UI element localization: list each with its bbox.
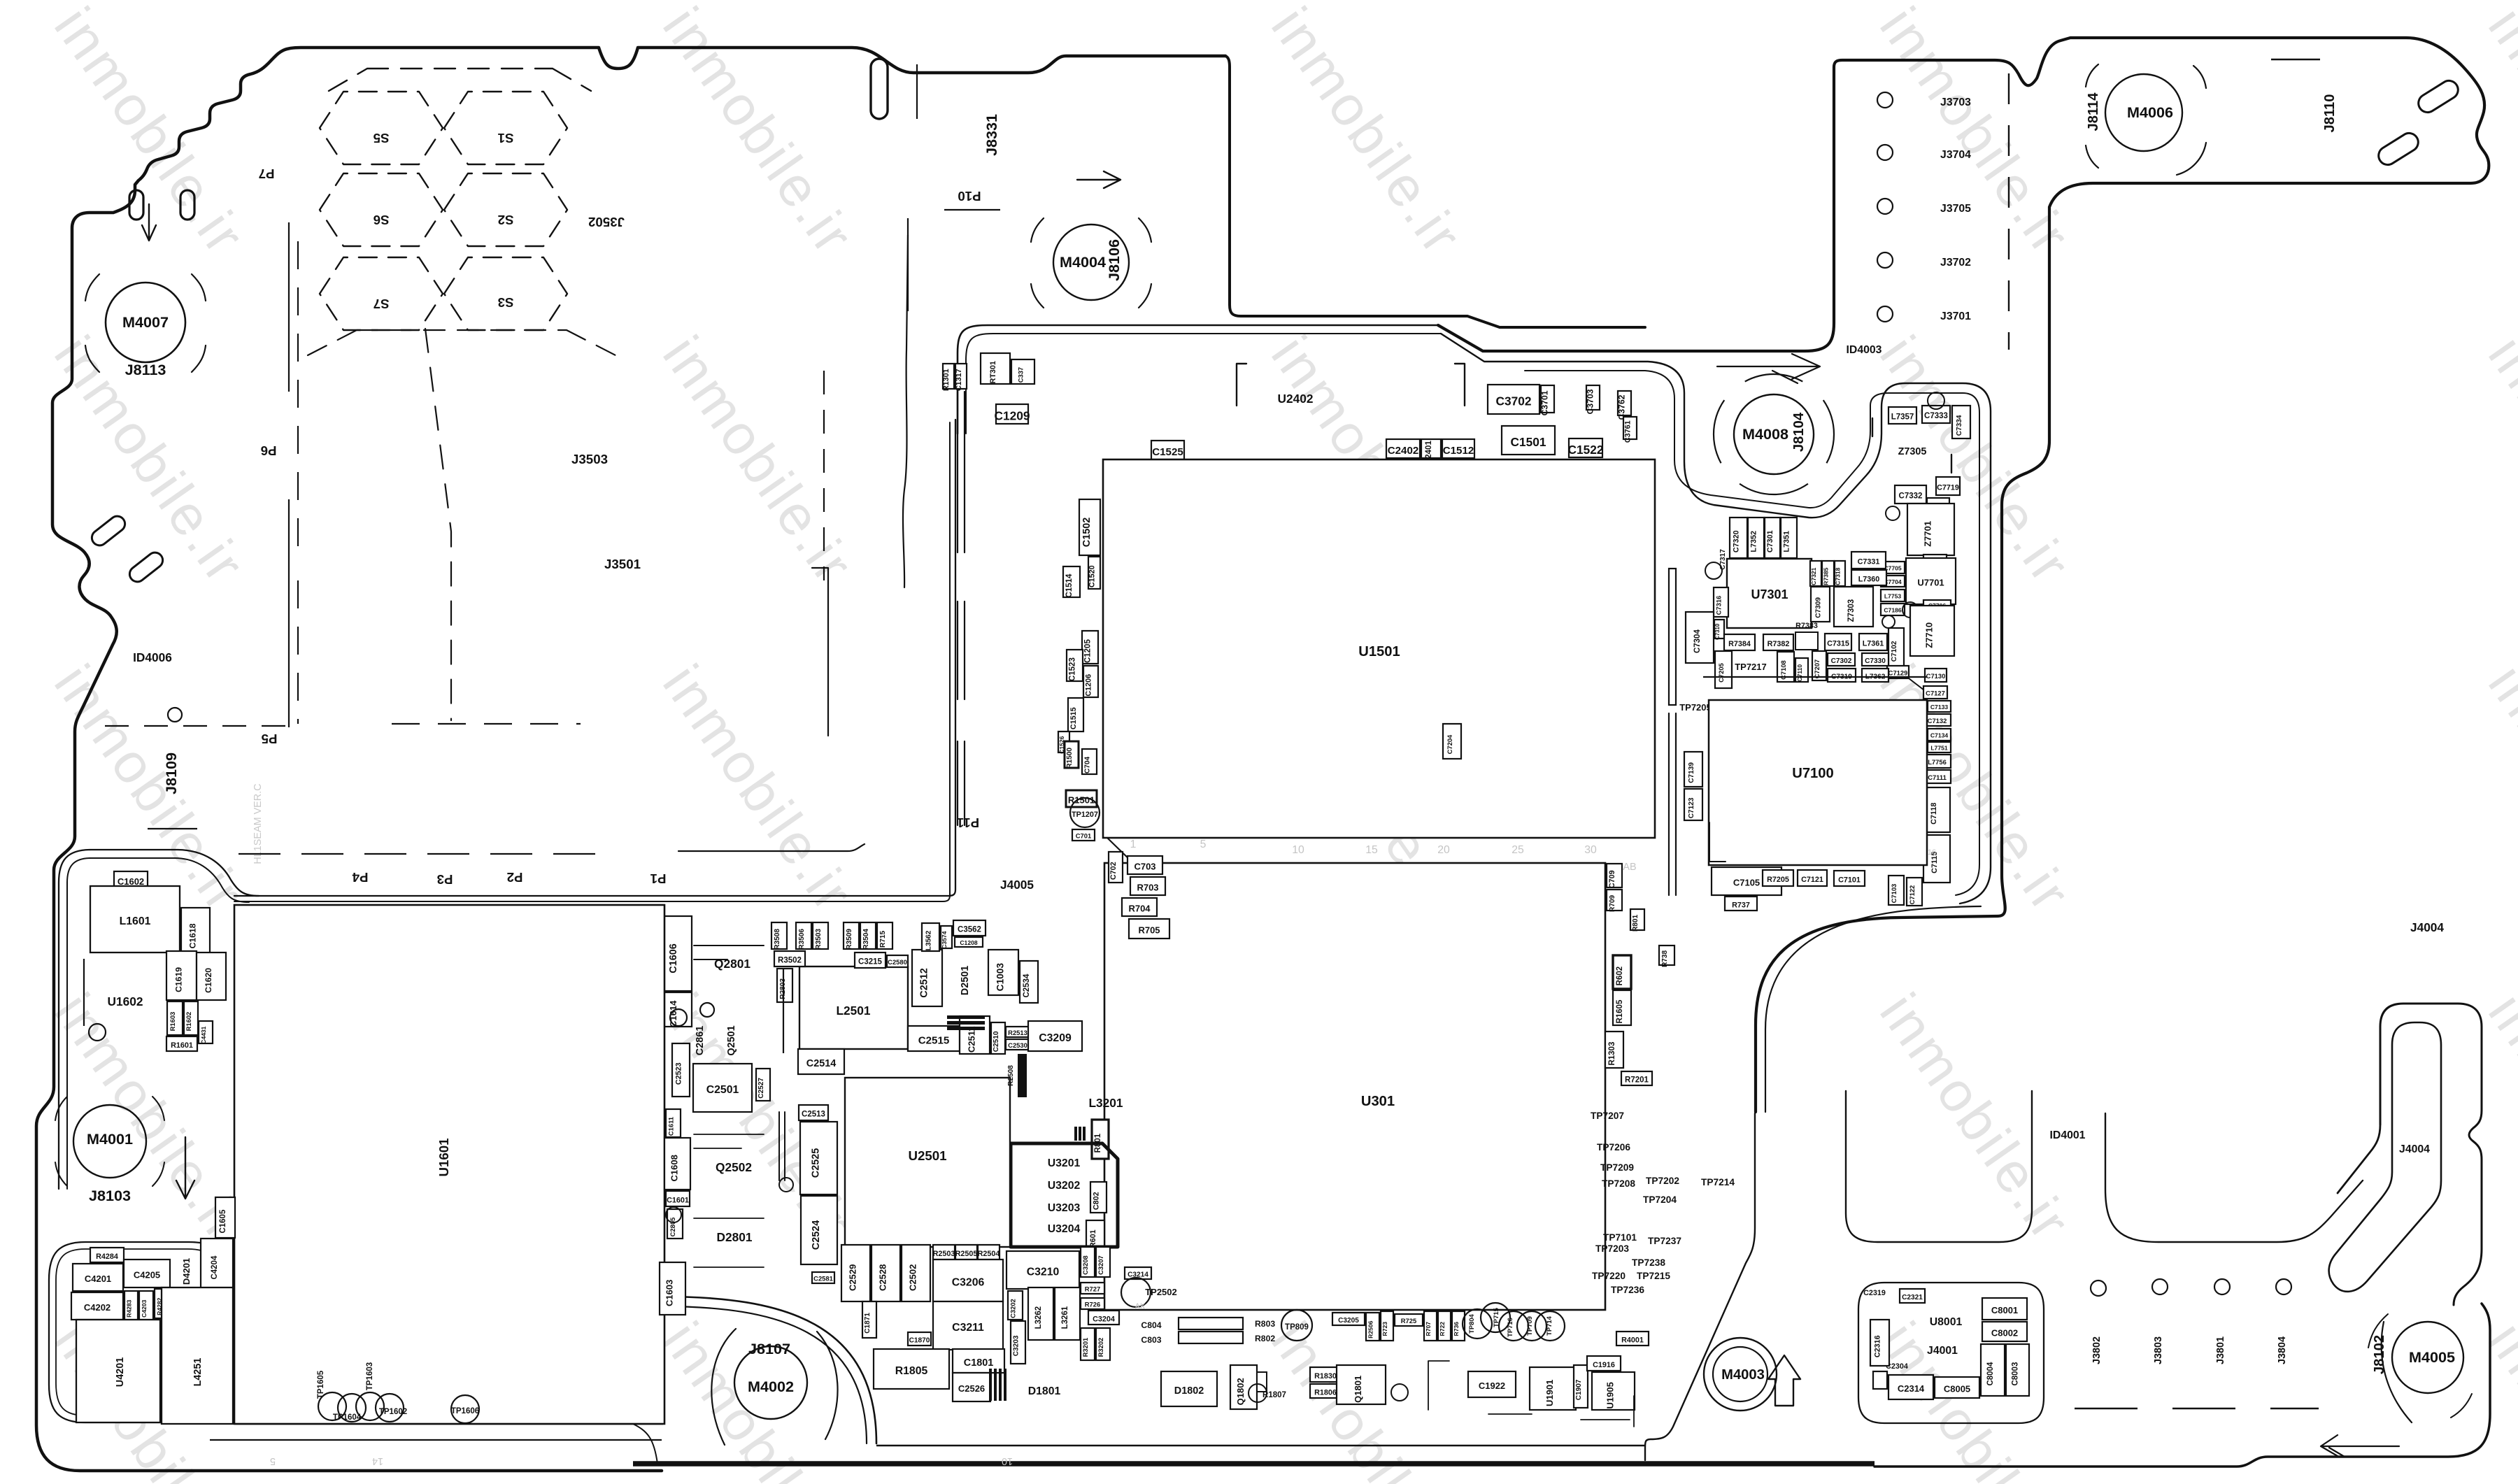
svg-text:C1208: C1208 — [960, 939, 978, 946]
svg-text:TP714: TP714 — [1545, 1315, 1553, 1335]
svg-text:C3205: C3205 — [1338, 1317, 1359, 1325]
svg-text:TP7220: TP7220 — [1592, 1271, 1626, 1281]
svg-text:J4004: J4004 — [2410, 920, 2444, 934]
svg-text:L7361: L7361 — [1863, 639, 1884, 648]
svg-text:C7332: C7332 — [1899, 492, 1923, 501]
svg-text:C1618: C1618 — [188, 923, 198, 948]
svg-text:R2506: R2506 — [1367, 1320, 1374, 1339]
svg-text:C7129: C7129 — [1888, 669, 1908, 677]
svg-text:R3502: R3502 — [778, 957, 802, 965]
svg-text:L7753: L7753 — [1884, 593, 1902, 600]
svg-text:TP7206: TP7206 — [1597, 1142, 1630, 1153]
svg-text:R722: R722 — [1439, 1322, 1446, 1336]
svg-text:14: 14 — [372, 1455, 383, 1467]
svg-text:L3262: L3262 — [1034, 1306, 1043, 1329]
svg-text:U301: U301 — [1361, 1094, 1395, 1109]
svg-text:L4251: L4251 — [192, 1358, 204, 1387]
svg-text:TP804: TP804 — [1467, 1313, 1475, 1333]
svg-text:C803: C803 — [1141, 1335, 1161, 1345]
svg-text:J8103: J8103 — [89, 1187, 131, 1204]
svg-text:TP7207: TP7207 — [1591, 1111, 1624, 1121]
svg-text:R7384: R7384 — [1728, 640, 1751, 648]
svg-text:U3203: U3203 — [1048, 1202, 1081, 1214]
svg-text:R1303: R1303 — [1608, 1042, 1616, 1066]
svg-text:J3702: J3702 — [1940, 257, 1971, 269]
svg-text:C8002: C8002 — [1991, 1327, 2018, 1338]
svg-text:TP7202: TP7202 — [1646, 1176, 1679, 1186]
svg-text:C8005: C8005 — [1944, 1383, 1970, 1394]
svg-text:R3202: R3202 — [1097, 1338, 1104, 1357]
svg-text:C1603: C1603 — [664, 1280, 675, 1306]
svg-text:R2508: R2508 — [1007, 1065, 1015, 1086]
svg-text:C1317: C1317 — [955, 369, 963, 391]
svg-text:P3: P3 — [437, 872, 453, 887]
svg-text:P11: P11 — [957, 815, 979, 830]
svg-text:M4002: M4002 — [748, 1378, 794, 1395]
svg-text:C7719: C7719 — [1937, 483, 1959, 492]
svg-text:R4283: R4283 — [126, 1299, 133, 1318]
svg-text:TP7101: TP7101 — [1603, 1232, 1637, 1243]
svg-text:C4201: C4201 — [85, 1273, 111, 1284]
svg-text:C1871: C1871 — [864, 1313, 872, 1334]
svg-text:U2402: U2402 — [1278, 392, 1314, 406]
svg-text:U3204: U3204 — [1048, 1223, 1081, 1235]
svg-text:TP1602: TP1602 — [379, 1408, 407, 1416]
svg-text:R715: R715 — [879, 930, 887, 948]
svg-text:30: 30 — [1584, 844, 1597, 856]
svg-text:P6: P6 — [261, 443, 277, 458]
svg-text:TP1604: TP1604 — [333, 1413, 362, 1422]
svg-text:M4007: M4007 — [122, 313, 169, 331]
svg-text:C802: C802 — [1093, 1192, 1101, 1210]
svg-text:C8001: C8001 — [1991, 1305, 2018, 1315]
svg-text:M4001: M4001 — [87, 1130, 133, 1148]
svg-text:C337: C337 — [1017, 367, 1025, 383]
svg-text:L7351: L7351 — [1783, 531, 1791, 552]
svg-text:R7382: R7382 — [1767, 640, 1790, 648]
svg-text:C2580: C2580 — [888, 958, 907, 966]
svg-text:C2515: C2515 — [918, 1034, 949, 1046]
svg-text:TP809: TP809 — [1285, 1323, 1309, 1332]
svg-text:R3509: R3509 — [846, 929, 853, 950]
svg-text:J8113: J8113 — [125, 361, 166, 378]
svg-text:C1907: C1907 — [1575, 1379, 1583, 1400]
svg-text:C7315: C7315 — [1827, 639, 1849, 648]
svg-text:R7383: R7383 — [1795, 622, 1818, 630]
svg-text:C3208: C3208 — [1081, 1255, 1089, 1275]
svg-text:Q2502: Q2502 — [716, 1160, 752, 1174]
svg-text:C8004: C8004 — [1986, 1362, 1995, 1385]
svg-text:J3501: J3501 — [604, 557, 641, 571]
svg-text:TP7217: TP7217 — [1735, 662, 1767, 672]
svg-text:C2511: C2511 — [967, 1027, 977, 1053]
svg-text:C3215: C3215 — [858, 958, 882, 966]
svg-text:C2528: C2528 — [878, 1264, 888, 1291]
svg-text:C3207: C3207 — [1097, 1255, 1104, 1275]
svg-text:C4202: C4202 — [84, 1302, 111, 1313]
svg-text:TP7203: TP7203 — [1595, 1243, 1629, 1254]
svg-text:TP7209: TP7209 — [1600, 1162, 1634, 1173]
svg-text:L7751: L7751 — [1930, 745, 1948, 752]
svg-text:C2805: C2805 — [669, 1218, 676, 1237]
svg-text:ID4003: ID4003 — [1847, 344, 1882, 356]
svg-text:R738: R738 — [1661, 950, 1669, 967]
svg-text:U7100: U7100 — [1792, 766, 1834, 781]
svg-text:C2529: C2529 — [848, 1264, 858, 1291]
svg-text:C4205: C4205 — [134, 1269, 160, 1280]
svg-text:C1611: C1611 — [667, 1117, 675, 1136]
svg-text:C3203: C3203 — [1013, 1335, 1020, 1356]
svg-text:S7: S7 — [374, 297, 390, 311]
svg-text:C1606: C1606 — [668, 943, 679, 973]
svg-text:L7360: L7360 — [1858, 575, 1880, 583]
svg-text:U3201: U3201 — [1048, 1157, 1081, 1169]
svg-text:C2524: C2524 — [811, 1220, 822, 1250]
svg-text:P4: P4 — [352, 870, 368, 885]
svg-text:J3503: J3503 — [571, 452, 608, 466]
svg-text:U8001: U8001 — [1930, 1316, 1963, 1328]
svg-text:R1603: R1603 — [169, 1012, 176, 1032]
svg-text:R7205: R7205 — [1767, 876, 1789, 884]
svg-text:C1605: C1605 — [219, 1209, 227, 1233]
svg-text:R704: R704 — [1128, 903, 1151, 913]
svg-text:D1801: D1801 — [1028, 1385, 1061, 1397]
svg-text:C7204: C7204 — [1446, 734, 1453, 754]
svg-text:R802: R802 — [1255, 1334, 1275, 1343]
svg-text:M4004: M4004 — [1060, 253, 1106, 271]
svg-text:R803: R803 — [1255, 1319, 1275, 1329]
svg-text:C7330: C7330 — [1865, 657, 1886, 665]
svg-text:R1500: R1500 — [1066, 748, 1074, 769]
svg-text:S6: S6 — [374, 213, 390, 227]
svg-text:M4006: M4006 — [2127, 104, 2173, 121]
svg-text:C7105: C7105 — [1733, 877, 1760, 887]
svg-text:C7333: C7333 — [1924, 412, 1948, 420]
svg-text:1: 1 — [1130, 839, 1137, 850]
svg-text:C703: C703 — [1134, 861, 1155, 871]
svg-text:U1602: U1602 — [108, 994, 143, 1008]
svg-text:C3209: C3209 — [1039, 1032, 1072, 1044]
svg-text:R3506: R3506 — [798, 929, 806, 950]
svg-text:Q1801: Q1801 — [1353, 1376, 1363, 1403]
svg-text:U1901: U1901 — [1544, 1380, 1555, 1406]
svg-text:S3: S3 — [498, 295, 514, 310]
svg-text:C1502: C1502 — [1081, 518, 1093, 547]
svg-text:D1802: D1802 — [1174, 1385, 1204, 1397]
svg-text:TP1606: TP1606 — [451, 1407, 479, 1415]
svg-text:J8110: J8110 — [2322, 94, 2338, 132]
svg-text:J8331: J8331 — [983, 114, 1000, 156]
svg-text:C2514: C2514 — [806, 1058, 836, 1069]
svg-text:C1620: C1620 — [204, 968, 213, 993]
svg-text:J3803: J3803 — [2153, 1336, 2164, 1364]
svg-text:C2523: C2523 — [675, 1062, 683, 1085]
svg-text:C7302: C7302 — [1831, 657, 1852, 665]
svg-text:M4003: M4003 — [1721, 1367, 1765, 1383]
svg-text:C1515: C1515 — [1069, 707, 1078, 729]
svg-text:C3204: C3204 — [1093, 1315, 1115, 1323]
svg-text:M4005: M4005 — [2409, 1348, 2455, 1366]
svg-text:TP1603: TP1603 — [366, 1362, 374, 1390]
svg-text:R1601: R1601 — [171, 1041, 193, 1050]
svg-text:J8109: J8109 — [162, 752, 180, 794]
svg-text:C7130: C7130 — [1926, 672, 1946, 680]
svg-text:J4004: J4004 — [2399, 1143, 2430, 1155]
svg-text:Z7701: Z7701 — [1923, 521, 1933, 547]
svg-text:J3704: J3704 — [1940, 149, 1971, 161]
svg-text:C1206: C1206 — [1085, 674, 1093, 697]
svg-text:C2534: C2534 — [1023, 973, 1031, 997]
svg-text:C7316: C7316 — [1715, 596, 1723, 615]
svg-text:C2512: C2512 — [919, 968, 930, 997]
svg-text:TP2502: TP2502 — [1145, 1287, 1177, 1297]
svg-text:C3702: C3702 — [1496, 394, 1532, 408]
svg-text:R707: R707 — [1425, 1322, 1432, 1336]
svg-text:5: 5 — [1200, 839, 1207, 850]
svg-text:C1209: C1209 — [995, 408, 1030, 422]
svg-text:C7309: C7309 — [1815, 597, 1823, 618]
svg-text:R4284: R4284 — [96, 1253, 118, 1261]
svg-text:S2: S2 — [498, 213, 514, 227]
svg-text:C2510: C2510 — [993, 1031, 1000, 1052]
svg-text:R1805: R1805 — [895, 1365, 928, 1377]
svg-text:L3261: L3261 — [1061, 1306, 1069, 1329]
svg-text:C1003: C1003 — [995, 963, 1006, 992]
svg-text:R3201: R3201 — [1081, 1338, 1089, 1357]
svg-text:L7357: L7357 — [1891, 413, 1914, 422]
svg-text:D2801: D2801 — [717, 1230, 753, 1244]
svg-text:C7205: C7205 — [1717, 663, 1725, 683]
svg-text:U2501: U2501 — [908, 1148, 946, 1163]
svg-text:U3202: U3202 — [1048, 1180, 1081, 1192]
svg-text:C3761: C3761 — [1624, 420, 1633, 443]
svg-text:10: 10 — [1002, 1455, 1013, 1467]
svg-text:TP7215: TP7215 — [1637, 1271, 1670, 1281]
svg-text:P2: P2 — [507, 870, 523, 885]
svg-text:R801: R801 — [1632, 914, 1639, 932]
svg-text:R725: R725 — [1401, 1317, 1416, 1325]
svg-text:C2513: C2513 — [802, 1111, 825, 1119]
svg-text:P10: P10 — [958, 189, 981, 204]
svg-text:C701: C701 — [1076, 832, 1091, 840]
svg-text:C2861: C2861 — [695, 1026, 706, 1055]
svg-text:C7121: C7121 — [1801, 876, 1823, 884]
svg-text:C7310: C7310 — [1714, 623, 1721, 640]
svg-text:C7301: C7301 — [1766, 530, 1774, 552]
svg-text:C7133: C7133 — [1930, 704, 1949, 711]
svg-text:C2316: C2316 — [1874, 1335, 1882, 1357]
svg-text:L3562: L3562 — [925, 930, 933, 950]
svg-text:C7110: C7110 — [1796, 664, 1803, 682]
svg-text:C2314: C2314 — [1898, 1383, 1925, 1394]
svg-text:C2501: C2501 — [706, 1084, 739, 1096]
svg-text:R2505: R2505 — [955, 1250, 978, 1258]
svg-text:S1: S1 — [498, 131, 514, 145]
svg-text:U7701: U7701 — [1917, 577, 1944, 587]
svg-text:AK: AK — [1134, 1303, 1146, 1311]
svg-text:TP7208: TP7208 — [1602, 1178, 1635, 1189]
svg-text:C1514: C1514 — [1065, 573, 1074, 597]
svg-text:M4008: M4008 — [1742, 425, 1788, 443]
svg-text:J3701: J3701 — [1940, 311, 1971, 322]
svg-text:R736: R736 — [1453, 1322, 1460, 1336]
svg-text:P5: P5 — [262, 732, 278, 746]
svg-text:C7122: C7122 — [1908, 885, 1916, 905]
svg-text:C4204: C4204 — [211, 1255, 219, 1279]
svg-text:10: 10 — [1292, 844, 1304, 856]
svg-text:25: 25 — [1511, 844, 1524, 856]
svg-text:HL1SEAM VER.C: HL1SEAM VER.C — [252, 783, 264, 864]
svg-text:R1605: R1605 — [1616, 999, 1624, 1023]
svg-text:R1830: R1830 — [1314, 1372, 1337, 1380]
svg-text:16: 16 — [1928, 848, 1936, 857]
svg-text:C2525: C2525 — [811, 1148, 822, 1178]
svg-text:TP7236: TP7236 — [1611, 1285, 1644, 1295]
svg-text:C7207: C7207 — [1813, 659, 1821, 679]
svg-text:C7334: C7334 — [1956, 415, 1963, 436]
svg-text:C2526: C2526 — [958, 1383, 985, 1394]
svg-text:C7101: C7101 — [1838, 876, 1861, 884]
svg-text:TP7214: TP7214 — [1701, 1177, 1735, 1187]
svg-text:U7301: U7301 — [1751, 587, 1788, 601]
svg-text:R3504: R3504 — [862, 929, 870, 950]
svg-text:C1922: C1922 — [1479, 1380, 1505, 1391]
svg-text:R3508: R3508 — [774, 929, 781, 950]
svg-text:C7134: C7134 — [1930, 732, 1949, 739]
svg-text:L7352: L7352 — [1750, 531, 1758, 552]
svg-text:C804: C804 — [1141, 1320, 1161, 1330]
svg-text:C709: C709 — [1608, 870, 1616, 888]
svg-text:U1601: U1601 — [436, 1138, 451, 1176]
svg-text:J8106: J8106 — [1105, 239, 1123, 281]
svg-text:J8102: J8102 — [2372, 1335, 2387, 1374]
svg-text:RT301: RT301 — [989, 361, 997, 383]
svg-text:R7385: R7385 — [1823, 567, 1830, 585]
svg-text:J8114: J8114 — [2086, 92, 2101, 131]
svg-text:C1870: C1870 — [909, 1336, 930, 1344]
svg-text:20: 20 — [1437, 844, 1450, 856]
svg-text:L1601: L1601 — [120, 915, 151, 927]
svg-text:TP716: TP716 — [1506, 1318, 1514, 1337]
svg-text:TP7237: TP7237 — [1648, 1236, 1681, 1246]
svg-text:5: 5 — [270, 1455, 276, 1467]
svg-text:C4203: C4203 — [141, 1299, 148, 1318]
svg-text:C3210: C3210 — [1027, 1267, 1060, 1278]
svg-text:J8107: J8107 — [748, 1340, 790, 1357]
svg-text:J3801: J3801 — [2215, 1336, 2226, 1364]
svg-text:C1525: C1525 — [1152, 446, 1183, 458]
svg-text:C7304: C7304 — [1693, 629, 1702, 653]
svg-text:L7756: L7756 — [1928, 758, 1947, 766]
svg-text:C2402: C2402 — [1388, 445, 1418, 457]
svg-text:C2581: C2581 — [813, 1275, 833, 1283]
svg-text:D2501: D2501 — [960, 966, 971, 995]
svg-text:C3562: C3562 — [958, 926, 981, 934]
svg-text:L3201: L3201 — [1088, 1096, 1123, 1110]
svg-text:TP7204: TP7204 — [1643, 1194, 1677, 1205]
svg-text:C7123: C7123 — [1688, 797, 1695, 818]
svg-text:R723: R723 — [1381, 1322, 1388, 1336]
svg-text:R737: R737 — [1732, 901, 1750, 909]
svg-text:C2319: C2319 — [1863, 1289, 1886, 1297]
svg-text:J3804: J3804 — [2277, 1336, 2288, 1364]
svg-text:C1602: C1602 — [118, 876, 144, 887]
svg-text:ID4001: ID4001 — [2050, 1129, 2086, 1141]
svg-text:C7127: C7127 — [1926, 690, 1945, 697]
svg-text:Q1802: Q1802 — [1235, 1378, 1246, 1405]
svg-text:C1916: C1916 — [1593, 1361, 1615, 1369]
svg-text:J3502: J3502 — [588, 215, 625, 229]
svg-text:C2502: C2502 — [908, 1264, 918, 1291]
svg-text:R2513: R2513 — [1008, 1029, 1027, 1036]
svg-text:R3503: R3503 — [815, 929, 823, 950]
svg-text:TP1605: TP1605 — [317, 1370, 325, 1399]
svg-text:C1601: C1601 — [667, 1196, 689, 1204]
svg-text:R727: R727 — [1085, 1285, 1100, 1293]
svg-text:C2321: C2321 — [1902, 1294, 1923, 1301]
svg-text:C3206: C3206 — [952, 1277, 985, 1289]
svg-text:C7331: C7331 — [1858, 557, 1880, 566]
svg-text:J3802: J3802 — [2091, 1336, 2103, 1364]
svg-text:Z7305: Z7305 — [1898, 446, 1927, 457]
svg-text:R602: R602 — [1616, 966, 1624, 986]
svg-text:C3574: C3574 — [941, 931, 948, 949]
svg-text:C3703: C3703 — [1586, 389, 1595, 414]
svg-text:U1501: U1501 — [1358, 644, 1400, 659]
svg-text:C7103: C7103 — [1890, 884, 1898, 904]
svg-text:TP7205: TP7205 — [1679, 702, 1712, 713]
svg-text:C7132: C7132 — [1928, 717, 1947, 725]
svg-text:TP1207: TP1207 — [1072, 811, 1098, 819]
svg-text:R1602: R1602 — [185, 1012, 192, 1032]
svg-text:C1523: C1523 — [1069, 657, 1077, 681]
svg-text:AB: AB — [1623, 862, 1636, 873]
svg-text:U1905: U1905 — [1605, 1382, 1616, 1408]
svg-text:C1512: C1512 — [1443, 445, 1474, 457]
svg-text:R7201: R7201 — [1625, 1076, 1649, 1085]
svg-text:15: 15 — [1365, 844, 1378, 856]
svg-text:J3703: J3703 — [1940, 97, 1971, 108]
svg-text:C1801: C1801 — [964, 1357, 993, 1369]
svg-text:C1205: C1205 — [1084, 639, 1093, 663]
svg-text:C7102: C7102 — [1891, 641, 1898, 662]
svg-text:TP709: TP709 — [1525, 1316, 1533, 1336]
svg-text:C7320: C7320 — [1733, 530, 1741, 552]
svg-text:C4431: C4431 — [200, 1026, 207, 1044]
svg-text:C8003: C8003 — [2012, 1362, 2020, 1386]
svg-text:C7321: C7321 — [1810, 567, 1817, 585]
svg-text:TP7238: TP7238 — [1632, 1257, 1665, 1268]
svg-text:C702: C702 — [1109, 862, 1118, 880]
svg-text:R705: R705 — [1138, 925, 1160, 935]
svg-text:C7318: C7318 — [1835, 567, 1842, 585]
svg-text:Z7303: Z7303 — [1847, 599, 1856, 622]
svg-text:Q2501: Q2501 — [726, 1025, 737, 1055]
svg-text:C3701: C3701 — [1540, 390, 1550, 415]
svg-text:P1: P1 — [650, 871, 667, 886]
svg-text:C1608: C1608 — [669, 1155, 680, 1181]
svg-text:R2503: R2503 — [933, 1250, 955, 1258]
svg-text:C2527: C2527 — [757, 1078, 765, 1099]
svg-text:R4001: R4001 — [1621, 1336, 1644, 1344]
svg-text:C7118: C7118 — [1930, 803, 1938, 825]
svg-text:ID4006: ID4006 — [133, 650, 172, 664]
svg-text:C1501: C1501 — [1511, 435, 1546, 449]
svg-text:P7: P7 — [259, 166, 275, 181]
svg-text:R2504: R2504 — [978, 1250, 1000, 1258]
svg-text:J4001: J4001 — [1927, 1345, 1958, 1357]
svg-text:C7139: C7139 — [1688, 762, 1695, 783]
